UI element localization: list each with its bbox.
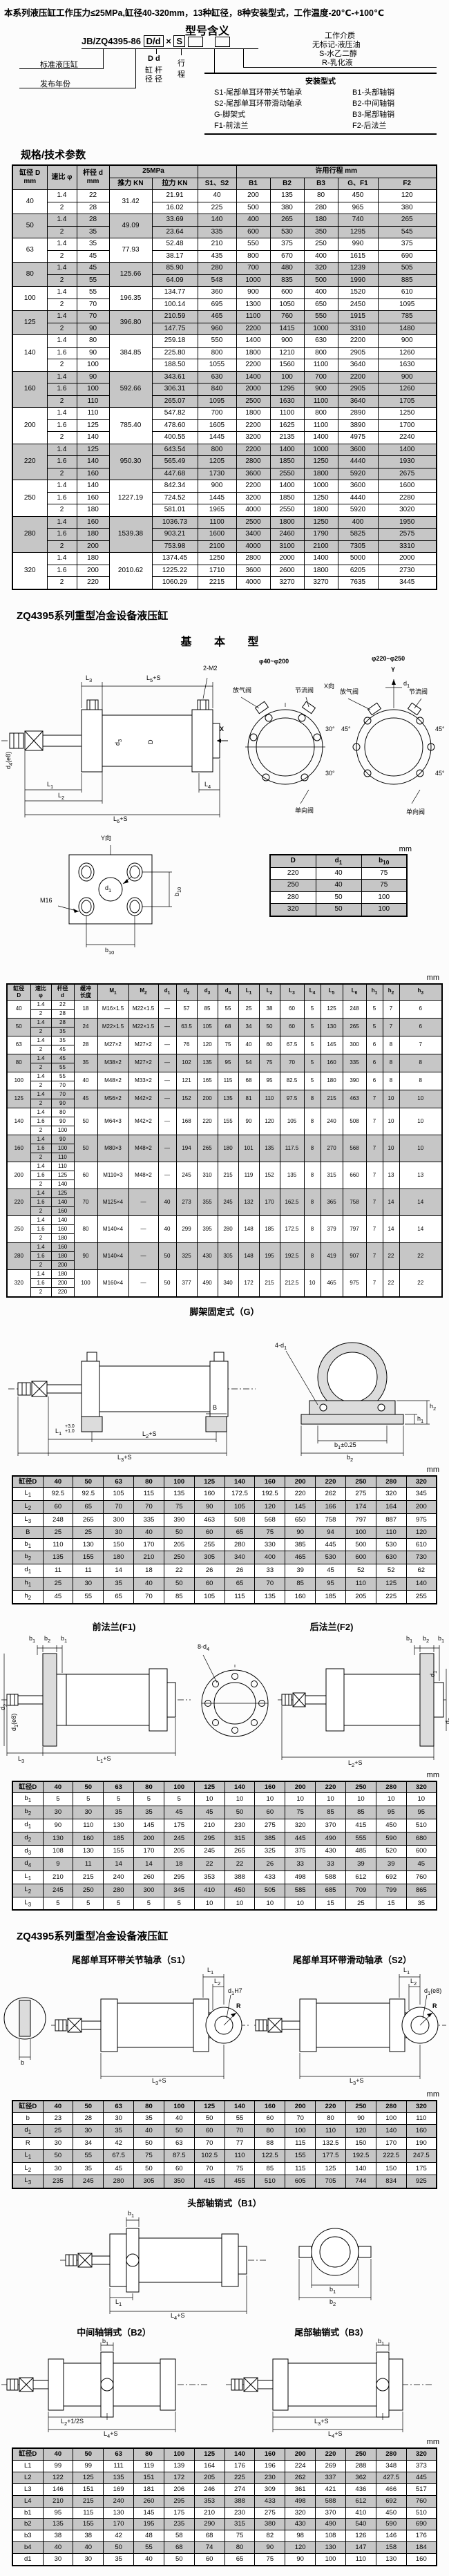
- label-dd: D d: [148, 55, 160, 63]
- table-cell: 225: [224, 2472, 255, 2483]
- b1-title: 头部轴销式（B1）: [0, 2196, 449, 2209]
- table-cell: 49.09: [109, 214, 152, 238]
- table-cell: 865: [406, 1884, 437, 1897]
- table-cell: 110: [345, 1577, 376, 1590]
- table-cell: 5: [304, 1036, 321, 1054]
- table-cell: 70: [280, 1054, 304, 1072]
- port-d1-label: d1: [105, 885, 111, 893]
- table-cell: 160: [255, 2448, 285, 2460]
- table-cell: 18: [134, 1564, 164, 1578]
- table-cell: 2000: [378, 553, 437, 565]
- table-cell: 247.5: [406, 2149, 437, 2162]
- table-cell: 45: [104, 2162, 134, 2175]
- f2-dim-b2: b2: [423, 1636, 429, 1644]
- table-row: 22816.02225500380280965380: [12, 202, 437, 214]
- table-cell: 180: [304, 214, 338, 227]
- table-cell: 210: [194, 2507, 224, 2519]
- table-cell: 170: [259, 1188, 280, 1215]
- table-cell: 1205: [198, 456, 236, 468]
- table-cell: 100: [316, 2554, 346, 2566]
- table-cell: 28: [51, 1009, 74, 1018]
- table-cell: 70: [74, 1188, 97, 1215]
- table-cell: 612: [345, 1871, 376, 1884]
- table-cell: 13: [399, 1162, 442, 1188]
- table-cell: 1.4: [30, 1072, 51, 1081]
- table-cell: 147.75: [152, 323, 198, 335]
- table-cell: 52: [376, 1564, 406, 1578]
- table-cell: 1.6: [47, 529, 77, 541]
- table-cell: 148: [238, 1215, 259, 1242]
- table-cell: 50: [73, 2101, 104, 2112]
- table-cell: 117.5: [280, 1135, 304, 1162]
- table-cell: 220: [7, 1188, 30, 1215]
- table-cell: 120: [197, 1036, 218, 1054]
- table-cell: 2: [47, 274, 77, 287]
- table-cell: 31.42: [109, 190, 152, 214]
- table-cell: 435: [198, 250, 236, 263]
- table-cell: 419: [321, 1242, 343, 1269]
- table-cell: 152: [176, 1090, 197, 1108]
- table-row: d12530354050607080100110120140160: [12, 2125, 437, 2138]
- table-row: 801.445125.6685.902807004803201239505: [12, 263, 437, 275]
- table-cell: 1965: [198, 504, 236, 517]
- table-cell: 150: [345, 2137, 376, 2149]
- table-cell: 164: [194, 2461, 224, 2472]
- table-cell: 490: [197, 1269, 218, 1297]
- table-cell: 6: [366, 1072, 383, 1090]
- table-cell: 1100: [198, 516, 236, 529]
- table-cell: 21.91: [152, 190, 198, 202]
- table-cell: 55: [73, 1590, 104, 1603]
- table-cell: 14: [104, 1564, 134, 1578]
- table-cell: 115: [218, 1072, 238, 1090]
- table-cell: 30: [73, 2125, 104, 2138]
- table-row: 28050100: [270, 891, 407, 904]
- table-cell: 1000: [304, 323, 338, 335]
- table-cell: 160: [51, 1242, 74, 1251]
- table-row: 1251.470396.80210.5946511007605501915785: [12, 311, 437, 323]
- table-cell: 100: [345, 1526, 376, 1538]
- table-cell: 1710: [198, 565, 236, 577]
- table-cell: 1400: [270, 444, 304, 456]
- mount-item-g: G-脚架式: [204, 108, 352, 120]
- table-cell: 185: [316, 1590, 346, 1603]
- table-cell: 100: [164, 1476, 194, 1488]
- table-cell: 300: [134, 1884, 164, 1897]
- table-cell: 650: [285, 1513, 316, 1526]
- angle-45-label-c: 45°: [435, 770, 445, 777]
- table-cell: 842.34: [152, 480, 198, 493]
- table-cell: d3: [12, 1845, 43, 1858]
- table-cell: 306.31: [152, 383, 198, 396]
- table-cell: 99: [43, 2461, 73, 2472]
- table-cell: 530: [270, 226, 304, 238]
- f1-dim-d2: d2: [0, 1703, 8, 1710]
- g-dim-l1: L1: [55, 1428, 61, 1437]
- table-cell: 335: [134, 1513, 164, 1526]
- table-cell: 325: [176, 1242, 197, 1269]
- table-cell: 2550: [270, 468, 304, 480]
- table-row: 1.690225.808001800121080029051260: [12, 347, 437, 359]
- table-cell: 40: [238, 1036, 259, 1054]
- table-cell: 95: [406, 1806, 437, 1819]
- table-cell: 40: [43, 2101, 73, 2112]
- g-dim-h2: h2: [430, 1403, 436, 1412]
- table-cell: 800: [198, 347, 236, 359]
- table-cell: b1: [12, 2507, 43, 2519]
- table-cell: 5: [304, 1000, 321, 1018]
- table-row: 缸径D40506380100125140160200220250280320: [12, 1476, 437, 1488]
- table-cell: L2: [12, 1884, 43, 1897]
- table-cell: 1445: [198, 492, 236, 504]
- table-row: 401.42218M16×1.5M22×1.5—5785552538605125…: [7, 1000, 442, 1009]
- table-cell: 39: [285, 1564, 316, 1578]
- eye-drawings: b L1 L2 d1H7 R L3+S: [0, 1967, 449, 2089]
- table-cell: 64.09: [152, 274, 198, 287]
- table-cell: —: [158, 1108, 176, 1135]
- check-valve-label-2: 单向阀: [406, 809, 425, 815]
- table-cell: 250: [7, 1215, 30, 1242]
- table-cell: 30: [104, 1526, 134, 1538]
- table-cell: 10: [255, 1793, 285, 1806]
- table-cell: L1: [12, 2149, 43, 2162]
- table-cell: 1480: [378, 323, 437, 335]
- table-cell: 100: [361, 904, 407, 916]
- f-table-unit: mm: [0, 1771, 439, 1779]
- table-cell: 1050: [270, 299, 304, 311]
- table-cell: 1615: [338, 250, 378, 263]
- table-cell: 25: [43, 1577, 73, 1590]
- table-cell: d3: [197, 984, 218, 1001]
- table-row: 2100188.50105522001560110036401630: [12, 359, 437, 372]
- table-cell: 125: [77, 419, 109, 432]
- mount-item-s2: S2-尾部单耳环带滑动轴承: [204, 97, 352, 108]
- table-cell: 1.4: [47, 190, 77, 202]
- table-cell: 250: [12, 480, 47, 517]
- table-cell: 760: [406, 1871, 437, 1884]
- table-cell: 1295: [338, 226, 378, 238]
- table-cell: 22: [383, 1269, 399, 1297]
- g-table-unit: mm: [0, 1466, 439, 1474]
- table-cell: 170: [134, 1845, 164, 1858]
- table-cell: 1600: [198, 529, 236, 541]
- table-cell: 30: [73, 1806, 104, 1819]
- table-cell: 478.60: [152, 419, 198, 432]
- table-cell: 100: [270, 371, 304, 383]
- table-cell: 40: [316, 880, 361, 892]
- table-cell: L3: [12, 2483, 43, 2495]
- table-cell: 2: [47, 504, 77, 517]
- table-cell: 65: [104, 1590, 134, 1603]
- table-cell: 200: [406, 1501, 437, 1514]
- table-row: 1401.480384.85259.1855014009006302200900: [12, 335, 437, 348]
- b2-dim-l2half: L2+1/2S: [61, 2418, 84, 2427]
- table-cell: 139: [164, 2461, 194, 2472]
- table-cell: 2200: [338, 371, 378, 383]
- table-cell: L1: [12, 2461, 43, 2472]
- table-cell: 1990: [338, 274, 378, 287]
- table-cell: 22: [399, 1242, 442, 1269]
- table-cell: 10: [285, 1793, 316, 1806]
- table-cell: 60: [259, 1036, 280, 1054]
- table-cell: 2: [47, 395, 77, 408]
- table-cell: 250: [73, 1884, 104, 1897]
- table-cell: 35: [77, 226, 109, 238]
- table-cell: 1950: [378, 516, 437, 529]
- table-cell: 10: [285, 1897, 316, 1910]
- table-cell: 缓冲长度: [74, 984, 97, 1001]
- s2-dim-r: R: [432, 2003, 437, 2009]
- table-cell: 375: [285, 1845, 316, 1858]
- table-cell: 215: [321, 1090, 343, 1108]
- table-cell: 1.4: [30, 1108, 51, 1117]
- table-cell: 210: [194, 1819, 224, 1832]
- model-code: JB/ZQ4395-86 D/d × S: [82, 35, 230, 47]
- table-cell: 450: [376, 1819, 406, 1832]
- table-cell: 1630: [378, 359, 437, 372]
- table-cell: 2: [30, 1153, 51, 1162]
- table-cell: 110: [73, 1819, 104, 1832]
- table-cell: 90: [77, 323, 109, 335]
- table-cell: 126: [345, 2530, 376, 2542]
- table-cell: 28: [77, 214, 109, 227]
- flange-table: 缸径D40506380100125140160200220250280320b1…: [12, 1781, 437, 1911]
- table-cell: 90: [255, 2542, 285, 2554]
- table-cell: 1100: [304, 359, 338, 372]
- table-cell: 180: [77, 529, 109, 541]
- table-cell: M22×1.5: [97, 1018, 128, 1036]
- table-cell: 3445: [378, 577, 437, 589]
- table-cell: 30: [43, 2137, 73, 2149]
- table-cell: 517: [406, 2483, 437, 2495]
- table-cell: 65: [73, 1501, 104, 1514]
- table-cell: 370: [316, 1819, 346, 1832]
- table-cell: 5: [73, 1897, 104, 1910]
- table-cell: 692: [376, 1871, 406, 1884]
- throttle-valve-label-1: 节流阀: [295, 688, 314, 694]
- table-cell: 343.61: [152, 371, 198, 383]
- table-cell: 192.5: [345, 2149, 376, 2162]
- table-cell: 40: [74, 1072, 97, 1090]
- table-row: b111013015017020525528033038544550053061…: [12, 1538, 437, 1551]
- table-cell: 1.4: [47, 238, 77, 251]
- table-cell: 18: [74, 1000, 97, 1018]
- table-cell: 565.49: [152, 456, 198, 468]
- label-jing-jing: 径 径: [145, 73, 162, 84]
- table-cell: 40: [134, 2125, 164, 2138]
- table-cell: 700: [236, 263, 270, 275]
- table-cell: 160: [285, 1590, 316, 1603]
- table-cell: 550: [236, 238, 270, 251]
- table-cell: 25: [73, 1526, 104, 1538]
- model-code-box-1: [188, 37, 203, 47]
- table-cell: 63: [7, 1036, 30, 1054]
- table-cell: 610: [378, 287, 437, 299]
- table-cell: 255: [406, 1590, 437, 1603]
- table-cell: 120: [378, 190, 437, 202]
- table-cell: 35: [104, 1577, 134, 1590]
- table-cell: h1: [12, 1577, 43, 1590]
- table-cell: 490: [316, 1832, 346, 1845]
- table-row: 1.62001225.22171036002600180062052730: [12, 565, 437, 577]
- table-cell: 105: [194, 1590, 224, 1603]
- table-cell: 28: [77, 202, 109, 214]
- table-cell: 220: [12, 444, 47, 480]
- table-row: 缸径 Dmm速比 φ杆径 dmm25MPa许用行程 mm: [12, 165, 437, 178]
- table-cell: 430: [197, 1242, 218, 1269]
- table-cell: 724.52: [152, 492, 198, 504]
- table-cell: 5: [164, 1793, 194, 1806]
- table-cell: 16.02: [152, 202, 198, 214]
- table-cell: 8: [383, 1054, 399, 1072]
- mount-item-s1: S1-尾部单耳环带关节轴承: [204, 86, 352, 97]
- table-cell: 160: [255, 1781, 285, 1793]
- table-cell: 373: [406, 2461, 437, 2472]
- table-cell: 280: [376, 2101, 406, 2112]
- table-cell: 150: [104, 1538, 134, 1551]
- table-cell: 3890: [338, 419, 378, 432]
- table-cell: 26: [224, 1564, 255, 1578]
- table-cell: 缸径D: [12, 2448, 43, 2460]
- table-cell: 75: [224, 2162, 255, 2175]
- table-cell: 5: [104, 1793, 134, 1806]
- table-cell: S1、S2: [198, 178, 236, 190]
- table-cell: 505: [378, 263, 437, 275]
- table-cell: b2: [12, 2519, 43, 2530]
- table-cell: 140: [376, 2125, 406, 2138]
- table-cell: 60: [280, 1000, 304, 1018]
- table-cell: 200: [51, 1260, 74, 1269]
- table-cell: 2200: [236, 359, 270, 372]
- table-row: 501.42849.0933.69140400265180740265: [12, 214, 437, 227]
- dim-d3-side: d3: [115, 739, 123, 745]
- table-cell: 2: [47, 226, 77, 238]
- table-cell: 900: [236, 287, 270, 299]
- table-cell: B1: [236, 178, 270, 190]
- table-cell: 269: [316, 2461, 346, 2472]
- b3-title: 尾部轴销式（B3）: [228, 2325, 435, 2338]
- table-cell: 63.5: [176, 1018, 197, 1036]
- table-cell: 1100: [304, 419, 338, 432]
- table-cell: 28: [51, 1018, 74, 1027]
- table-cell: 48: [134, 2530, 164, 2542]
- table-cell: 60: [194, 2125, 224, 2138]
- table-cell: 345: [164, 1884, 194, 1897]
- table-cell: 2: [30, 1045, 51, 1054]
- model-code-dd-box: D/d: [144, 35, 164, 47]
- table-cell: 1539.38: [109, 516, 152, 553]
- table-cell: 1.6: [30, 1144, 51, 1153]
- table-cell: 160: [255, 2101, 285, 2112]
- table-cell: 110: [77, 395, 109, 408]
- table-row: L121021524026029535338843349858861269276…: [12, 1871, 437, 1884]
- table-cell: 600: [270, 287, 304, 299]
- table-cell: 630: [198, 371, 236, 383]
- table-cell: 85: [255, 2162, 285, 2175]
- table-cell: 797: [345, 1513, 376, 1526]
- table-row: 3201.4180100M160×4—50377490340172215212.…: [7, 1269, 442, 1278]
- table-cell: 155: [104, 1845, 134, 1858]
- table-cell: 224: [285, 2461, 316, 2472]
- table-cell: 220: [197, 1108, 218, 1135]
- table-cell: 35: [104, 1806, 134, 1819]
- table-cell: 730: [406, 1551, 437, 1564]
- s1-dim-l2: L2: [214, 1978, 220, 1987]
- table-cell: 385: [285, 1538, 316, 1551]
- table-cell: 1.6: [47, 456, 77, 468]
- b3-dim-b1: b1: [378, 2338, 384, 2347]
- table-cell: 1100: [236, 311, 270, 323]
- table-cell: 350: [164, 2175, 194, 2188]
- table-cell: 206: [164, 2483, 194, 2495]
- table-cell: 195: [259, 1242, 280, 1269]
- table-cell: 50: [259, 1018, 280, 1036]
- table-cell: 248: [43, 1513, 73, 1526]
- angle-45-label-a: 45°: [341, 726, 351, 732]
- table-cell: 75: [255, 1526, 285, 1538]
- table-cell: 505: [255, 1884, 285, 1897]
- table-cell: 172: [164, 2472, 194, 2483]
- table-cell: 30: [73, 1577, 104, 1590]
- table-cell: 45: [51, 1054, 74, 1063]
- table-cell: 160: [51, 1224, 74, 1233]
- table-cell: 100: [376, 2113, 406, 2125]
- table-cell: 568: [343, 1135, 366, 1162]
- table-row: 501.42824M22×1.5M22×1.5—63.5105683450605…: [7, 1018, 442, 1027]
- table-cell: 7635: [338, 577, 378, 589]
- vent-valve-label-2: 放气阀: [340, 689, 359, 695]
- g-mount-title: 脚架固定式（G）: [0, 1305, 449, 1318]
- table-cell: 265: [224, 1845, 255, 1858]
- table-cell: 90: [285, 1526, 316, 1538]
- table-cell: 760: [270, 311, 304, 323]
- table-cell: 4000: [236, 504, 270, 517]
- table-cell: 235: [43, 2175, 73, 2188]
- table-cell: 90: [43, 1819, 73, 1832]
- table-row: L324826530033539046350856865075879788797…: [12, 1513, 437, 1526]
- table-cell: 75: [361, 867, 407, 880]
- table-cell: 102.5: [194, 2149, 224, 2162]
- table-cell: 185: [104, 1832, 134, 1845]
- f1-dim-l3: L3: [18, 1756, 24, 1764]
- table-cell: h3: [399, 984, 442, 1001]
- table-cell: 160: [255, 1476, 285, 1488]
- table-cell: 100: [51, 1126, 74, 1135]
- table-row: 2180581.01196540002550180059203020: [12, 504, 437, 517]
- table-cell: 10: [376, 1793, 406, 1806]
- table-cell: 1.4: [47, 516, 77, 529]
- table-row: 401.42231.4221.914020013580450120: [12, 190, 437, 202]
- table-cell: M56×2: [97, 1090, 128, 1108]
- table-cell: 1100: [304, 395, 338, 408]
- table-cell: 10: [383, 1135, 399, 1162]
- s2-dim-l1: L1: [403, 1967, 410, 1976]
- table-cell: 530: [316, 1551, 346, 1564]
- table-row: L3555551010101015251535: [12, 1897, 437, 1910]
- table-cell: 3270: [304, 577, 338, 589]
- table-cell: 50: [74, 1135, 97, 1162]
- table-cell: 40: [43, 2542, 73, 2554]
- table-cell: L1: [12, 1488, 43, 1501]
- table-cell: 95: [376, 1806, 406, 1819]
- table-cell: 630: [304, 335, 338, 348]
- table-cell: 225.80: [152, 347, 198, 359]
- table-cell: 1705: [378, 395, 437, 408]
- table-cell: 6: [366, 1036, 383, 1054]
- table-row: 2160447.68173036002550180059202675: [12, 468, 437, 480]
- table-cell: 1850: [270, 492, 304, 504]
- table-cell: 165: [197, 1072, 218, 1090]
